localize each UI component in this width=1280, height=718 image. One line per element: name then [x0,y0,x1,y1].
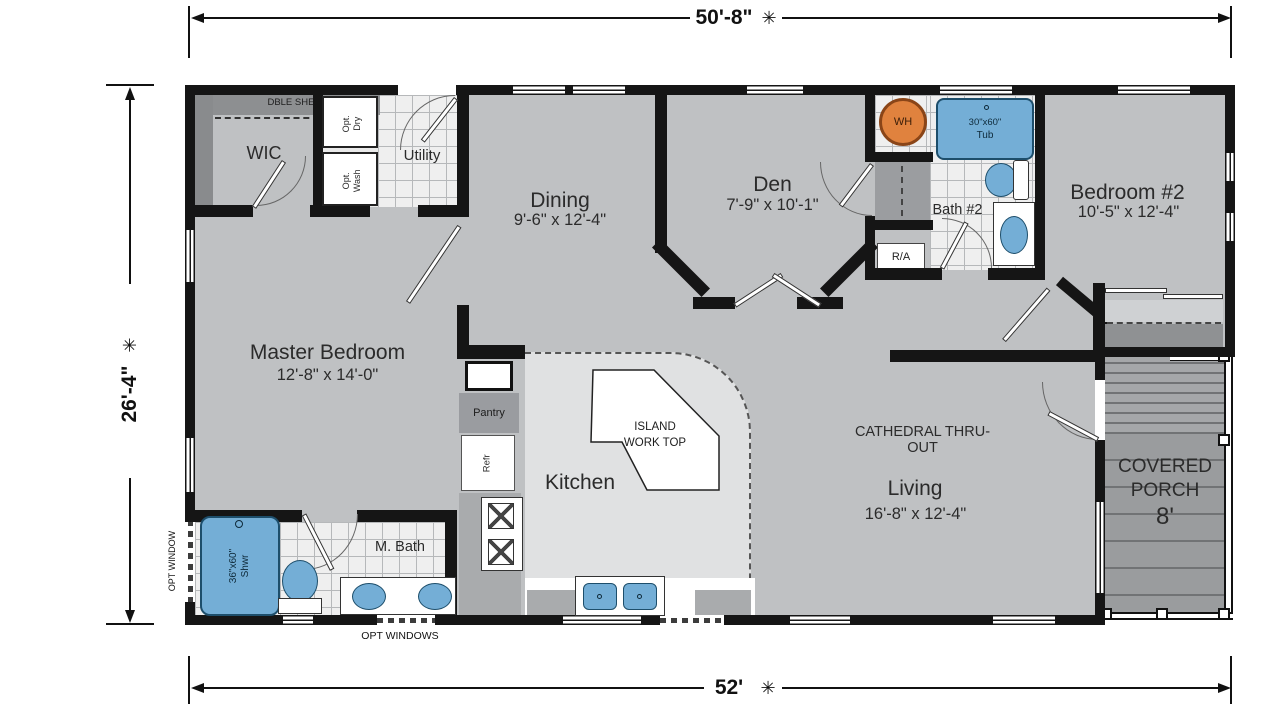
window-bedroom2-top [1118,85,1190,95]
porch-post [1218,608,1230,620]
opt-window-label: OPT WINDOW [167,522,177,600]
bottom-dim-line-right [782,687,1218,689]
wic-bottom-wall-1 [185,205,253,217]
mbath-label: M. Bath [360,539,440,555]
bedroom2-closet-left-wall [1093,283,1105,349]
bedroom2-closet-rod-area [1105,324,1223,347]
water-heater-label: WH [894,116,912,128]
kitchen-counter-block-left [527,590,579,615]
bottom-dim-label: 52' [704,676,754,700]
opt-washer: Opt.Wash [322,152,378,206]
wh-closet-left-wall [865,85,875,155]
sink-drain-icon [637,594,642,599]
left-dim-star-icon: ✳ [120,337,141,352]
kitchen-counter-block-right [695,590,751,615]
den-label: Den [715,173,830,197]
outer-wall-bottom [185,615,1105,625]
mbath-top-wall-2 [357,510,457,522]
top-dim-line-left [204,17,690,19]
opt-windows-living [660,615,724,625]
top-dim-arrow-right [1218,13,1231,23]
opt-dryer: Opt.Dry [322,96,378,148]
bath2-bottom-wall-2 [988,268,1035,280]
opt-windows-label: OPT WINDOWS [345,631,455,643]
water-heater: WH [879,98,927,146]
bottom-dim-tick-right [1230,656,1232,704]
living-right-wall-2 [1095,440,1105,502]
utility-right-wall [457,85,469,217]
den-dims: 7'-9" x 10'-1" [700,196,845,214]
shower-size-label: 36"x60" [228,521,240,611]
window-master-2 [185,438,195,492]
opt-window-mbath [185,520,195,602]
living-dims: 16'-8" x 12'-4" [838,505,993,523]
window-bedroom2-right-1 [1225,153,1235,181]
island-label-1: ISLAND [600,421,710,434]
bath2-toilet-tank [1013,160,1029,200]
porch-bottom-railing [1105,612,1233,620]
tub-drain-icon [984,105,989,110]
dining-dims: 9'-6" x 12'-4" [490,211,630,229]
window-kitchen-sink [563,615,641,625]
bath2-label: Bath #2 [920,202,995,218]
window-bedroom2-right-2 [1225,213,1235,241]
sink-drain-icon [597,594,602,599]
hall-living-wall [890,350,1105,362]
floor-plan-canvas: 50'-8" ✳ 26'-4" ✳ 52' ✳ COVERED PORCH 8' [0,0,1280,718]
hall-top-wall [865,268,935,280]
kitchen-sink-left [583,583,617,610]
left-dim-arrow-down [125,610,135,623]
opt-washer-label: Opt.Wash [341,156,363,206]
bedroom2-dims: 10'-5" x 12'-4" [1066,203,1191,221]
left-dim-label: 26'-4" [118,366,142,423]
shower-label-group: 36"x60" Shwr [228,521,252,611]
mbath-toilet-bowl [282,560,318,602]
opt-windows-vanity [377,615,435,625]
porch-right-railing [1224,352,1233,618]
utility-label: Utility [382,148,462,165]
refrigerator: Refr [461,435,515,491]
left-dim-line-bottom [129,478,131,615]
left-dim-line-top [129,99,131,284]
stove-burner-icon [488,539,514,565]
tub-size-label: 30"x60" [938,118,1032,129]
bottom-dim-tick-left [188,656,190,704]
window-dining-2 [573,85,625,95]
bottom-dim-arrow-right [1218,683,1231,693]
bedroom2-closet-shelf [1105,300,1223,322]
stove-burner-icon [488,503,514,529]
window-master-1 [185,230,195,282]
refrigerator-label: Refr [483,443,494,483]
return-air-box: R/A [877,243,925,270]
bathtub: 30"x60" Tub [936,98,1034,160]
bath2-sink [1000,216,1028,254]
top-dim-arrow-left [191,13,204,23]
bath2-bottom-wall-1 [930,268,942,280]
den-bottom-wall-left [693,297,735,309]
living-label: Living [845,477,985,501]
bath2-right-wall [1035,85,1045,280]
bottom-dim-arrow-left [191,683,204,693]
porch-post [1156,608,1168,620]
left-dim-tick-top [106,84,154,86]
kitchen-sink-right [623,583,657,610]
porch-label-porch: PORCH [1115,480,1215,501]
utility-backdoor-gap [398,85,456,95]
window-living-right [1095,502,1105,593]
pantry-label: Pantry [473,407,505,419]
bedroom2-closet-slider-2 [1163,294,1223,299]
dining-label: Dining [495,189,625,213]
wh-closet-bottom-wall [865,152,933,162]
tub-label: Tub [938,130,1032,141]
pantry-top-wall [457,345,525,359]
mbath-sink-right [418,583,452,610]
bottom-dim-star-icon: ✳ [757,678,779,698]
bedroom2-closet-bottom-wall [1093,347,1235,357]
left-dim-label-group: 26'-4" ✳ [112,285,148,475]
opt-dryer-label: Opt.Dry [341,99,363,149]
den-closet-dashline [901,166,903,216]
top-dim-star-icon: ✳ [758,8,780,28]
top-dim-line-right [782,17,1218,19]
porch-label-covered: COVERED [1115,456,1215,477]
bedroom2-closet-slider-1 [1105,288,1167,293]
window-living-2 [993,615,1055,625]
top-dim-tick-left [188,6,190,58]
living-right-wall-1 [1095,352,1105,380]
pantry-cabinet [465,361,513,391]
window-bath2 [940,85,1012,95]
porch-post [1218,434,1230,446]
porch-label-size: 8' [1115,504,1215,531]
left-dim-tick-bottom [106,623,154,625]
den-left-wall [655,85,667,253]
island-label-2: WORK TOP [600,437,710,450]
return-air-label: R/A [892,251,910,263]
den-closet-bottom-wall [865,220,933,230]
bottom-dim-line-left [204,687,704,689]
pantry: Pantry [459,393,519,433]
living-right-wall-3 [1095,593,1105,617]
master-bedroom-label: Master Bedroom [230,341,425,365]
mbath-sink-left [352,583,386,610]
master-bedroom-dims: 12'-8" x 14'-0" [250,366,405,384]
shower-label: Shwr [240,521,252,611]
mbath-toilet-base [278,598,322,614]
kitchen-label: Kitchen [520,471,640,495]
window-mbath-bottom [283,615,313,625]
window-living-1 [790,615,850,625]
cathedral-label: CATHEDRAL THRU-OUT [840,424,1005,456]
porch-steps [1105,352,1225,432]
bedroom2-label: Bedroom #2 [1060,181,1195,205]
outer-wall-top [185,85,1235,95]
top-dim-label: 50'-8" [690,6,758,30]
window-dining-1 [513,85,565,95]
wic-bottom-wall-2 [310,205,370,217]
window-den [747,85,803,95]
